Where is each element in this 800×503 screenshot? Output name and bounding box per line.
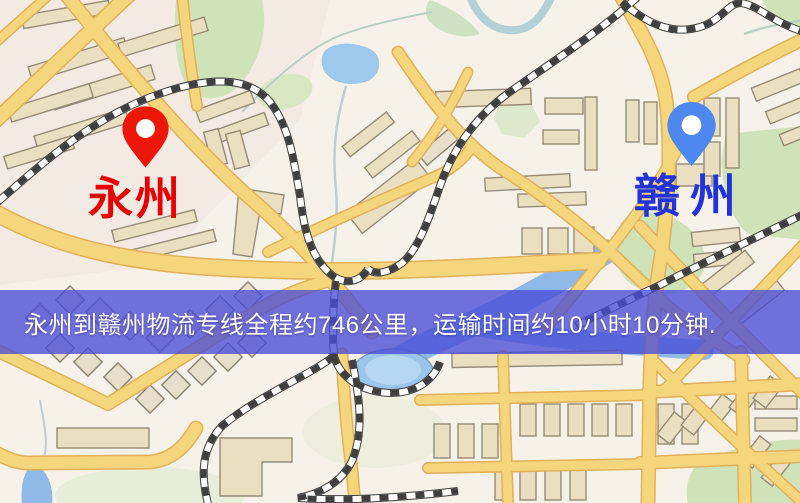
map-container: 永州 赣州 永州到赣州物流专线全程约746公里，运输时间约10小时10分钟. — [0, 0, 800, 503]
route-info-banner: 永州到赣州物流专线全程约746公里，运输时间约10小时10分钟. — [0, 290, 800, 354]
origin-label: 永州 — [88, 177, 182, 222]
map-canvas — [0, 0, 800, 503]
map-pin-icon — [665, 101, 718, 168]
map-pin-icon — [121, 103, 170, 172]
origin-pin — [121, 103, 170, 172]
route-info-text: 永州到赣州物流专线全程约746公里，运输时间约10小时10分钟. — [24, 305, 716, 340]
destination-pin — [665, 101, 718, 168]
destination-label: 赣州 — [634, 174, 746, 220]
